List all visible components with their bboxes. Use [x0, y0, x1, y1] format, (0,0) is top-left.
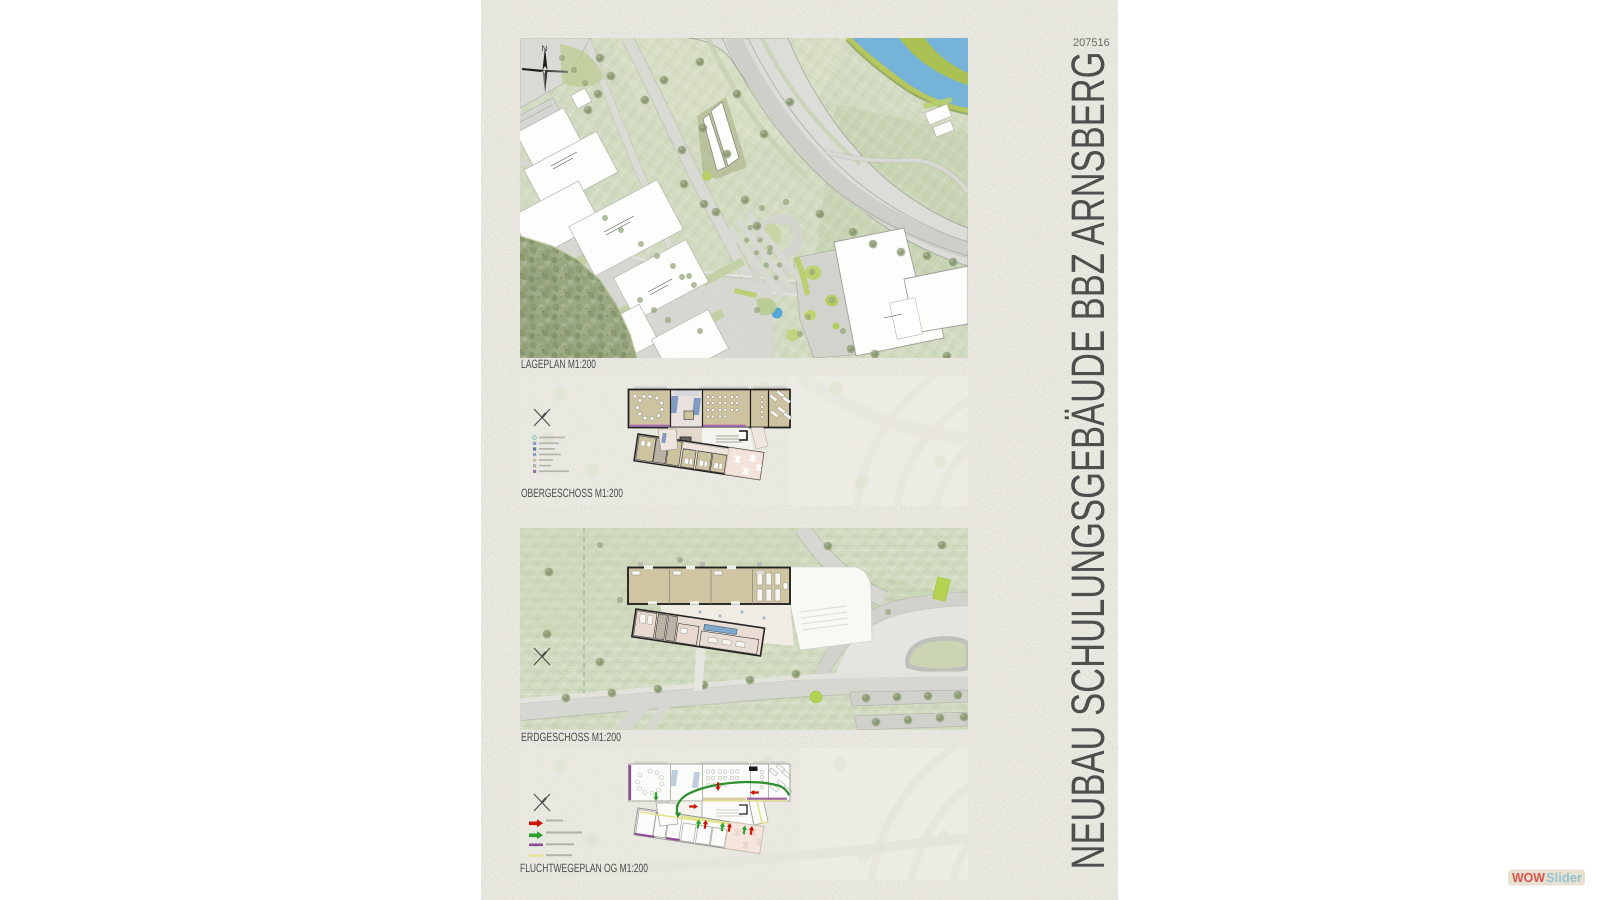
svg-text:NEUBAU SCHULUNGSGEBÄUDE BBZ AR: NEUBAU SCHULUNGSGEBÄUDE BBZ ARNSBERG	[1061, 52, 1114, 870]
svg-text:OBERGESCHOSS M1:200: OBERGESCHOSS M1:200	[521, 486, 623, 500]
svg-text:N: N	[542, 44, 548, 53]
svg-text:WOW: WOW	[1512, 870, 1546, 885]
svg-text:ERDGESCHOSS M1:200: ERDGESCHOSS M1:200	[521, 730, 621, 744]
svg-text:LAGEPLAN M1:200: LAGEPLAN M1:200	[521, 357, 596, 371]
svg-text:FLUCHTWEGEPLAN OG M1:200: FLUCHTWEGEPLAN OG M1:200	[520, 861, 648, 875]
svg-text:207516: 207516	[1073, 37, 1110, 49]
svg-text:Slider: Slider	[1546, 870, 1582, 885]
